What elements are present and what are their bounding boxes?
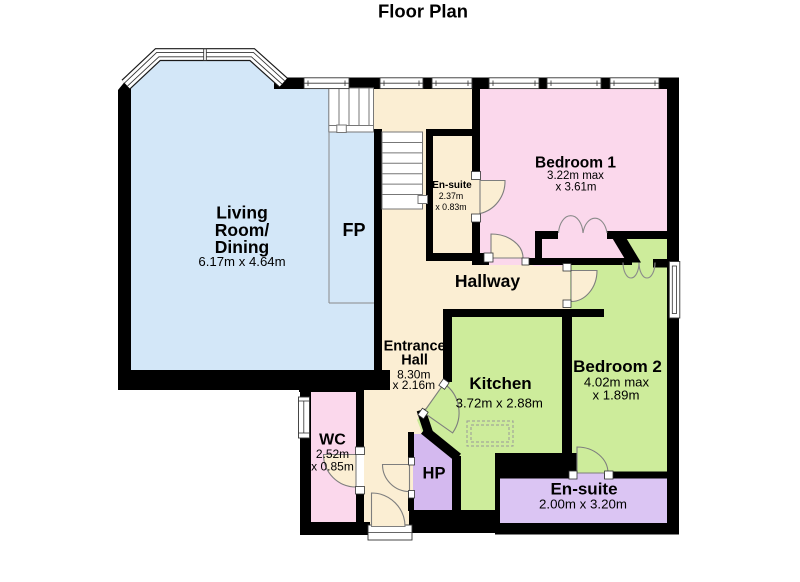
svg-text:En-suite: En-suite [432, 180, 472, 191]
svg-text:Bedroom 2: Bedroom 2 [573, 357, 662, 376]
svg-text:3.72m x 2.88m: 3.72m x 2.88m [456, 395, 543, 410]
svg-text:x 3.61m: x 3.61m [556, 182, 597, 194]
svg-text:x 2.16m: x 2.16m [392, 378, 435, 392]
svg-text:x 0.83m: x 0.83m [435, 202, 466, 212]
svg-text:2.00m x 3.20m: 2.00m x 3.20m [539, 496, 627, 511]
svg-text:WC: WC [319, 432, 346, 449]
svg-text:Hallway: Hallway [455, 271, 520, 291]
svg-text:HP: HP [423, 464, 446, 482]
svg-text:x 0.85m: x 0.85m [311, 460, 354, 474]
svg-text:Kitchen: Kitchen [469, 374, 531, 393]
svg-text:3.22m max: 3.22m max [547, 170, 604, 182]
svg-text:FP: FP [342, 220, 365, 240]
svg-text:x 1.89m: x 1.89m [593, 388, 640, 403]
svg-text:6.17m x 4.64m: 6.17m x 4.64m [198, 254, 285, 269]
svg-text:2.37m: 2.37m [439, 191, 463, 201]
svg-text:Floor Plan: Floor Plan [378, 1, 468, 22]
svg-text:Hall: Hall [401, 353, 428, 369]
